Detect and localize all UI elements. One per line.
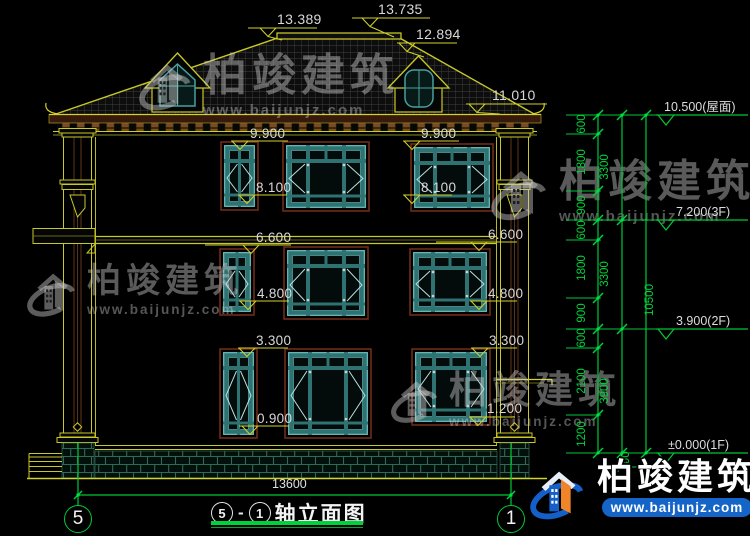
window-wide — [284, 348, 372, 439]
logo-brand: 柏竣建筑 — [597, 458, 750, 496]
grid-bubble-1: 1 — [497, 505, 525, 533]
title-underline-thin — [211, 527, 363, 528]
logo-site: www.baijunjz.com — [602, 498, 750, 517]
window-wide — [283, 246, 369, 320]
window-narrow — [219, 248, 255, 316]
window-wide — [282, 141, 370, 212]
window-wide — [411, 348, 491, 426]
window-narrow — [219, 348, 258, 439]
title-underline — [211, 521, 363, 525]
window-wide — [409, 248, 491, 316]
grid-bubble-5: 5 — [64, 505, 92, 533]
elevation-drawing-sheet: 柏竣建筑 www.baijunjz.com 柏竣建筑 www.baijunjz.… — [0, 0, 750, 536]
brand-logo-icon — [529, 458, 591, 526]
window-narrow — [220, 141, 259, 211]
brand-logo: 柏竣建筑 www.baijunjz.com — [529, 458, 750, 526]
title-dash: - — [238, 503, 244, 523]
window-wide — [410, 143, 494, 212]
